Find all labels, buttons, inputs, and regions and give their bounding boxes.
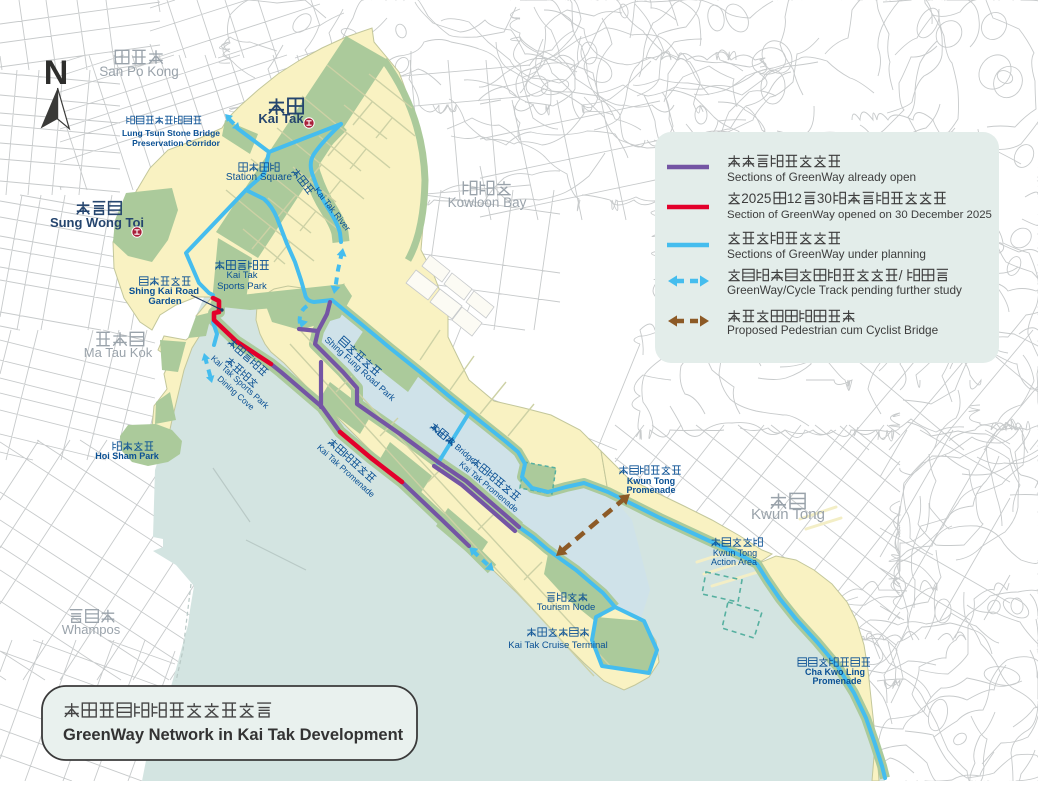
svg-text:/: / (899, 268, 903, 283)
svg-text:GreenWay Network in Kai Tak De: GreenWay Network in Kai Tak Development (63, 726, 404, 744)
svg-text:Promenade: Promenade (812, 676, 861, 686)
svg-text:Whampos: Whampos (62, 622, 121, 637)
svg-text:Sections of GreenWay already o: Sections of GreenWay already open (727, 170, 916, 184)
svg-text:N: N (44, 54, 69, 92)
svg-text:Kai Tak: Kai Tak (227, 270, 258, 281)
svg-text:Kai Tak Cruise Terminal: Kai Tak Cruise Terminal (508, 640, 607, 651)
svg-text:12: 12 (787, 191, 802, 206)
svg-text:Action Area: Action Area (711, 557, 757, 567)
svg-text:Tourism Node: Tourism Node (537, 602, 596, 613)
svg-text:Hoi Sham Park: Hoi Sham Park (95, 451, 160, 461)
svg-text:30: 30 (817, 191, 832, 206)
svg-text:GreenWay/Cycle Track pending f: GreenWay/Cycle Track pending further stu… (727, 283, 962, 297)
svg-text:Promenade: Promenade (626, 485, 675, 495)
svg-text:Lung Tsun Stone Bridge: Lung Tsun Stone Bridge (122, 128, 220, 138)
svg-text:Kwun Tong: Kwun Tong (751, 506, 825, 523)
svg-text:San Po Kong: San Po Kong (99, 64, 179, 79)
svg-text:Proposed Pedestrian cum Cyclis: Proposed Pedestrian cum Cyclist Bridge (727, 323, 939, 337)
svg-text:Preservation Corridor: Preservation Corridor (132, 138, 221, 148)
svg-text:Sports Park: Sports Park (217, 281, 267, 292)
svg-text:Garden: Garden (148, 296, 181, 307)
svg-text:Sections of GreenWay under pla: Sections of GreenWay under planning (727, 247, 926, 261)
svg-text:Sung Wong Toi: Sung Wong Toi (50, 215, 144, 230)
svg-text:Ma Tau Kok: Ma Tau Kok (84, 345, 153, 360)
svg-text:Kai Tak: Kai Tak (258, 111, 304, 126)
svg-text:Section of GreenWay opened on: Section of GreenWay opened on 30 Decembe… (727, 209, 992, 221)
svg-text:Station Square: Station Square (226, 172, 293, 183)
svg-text:2025: 2025 (741, 191, 771, 206)
svg-text:Kowloon Bay: Kowloon Bay (448, 195, 527, 210)
